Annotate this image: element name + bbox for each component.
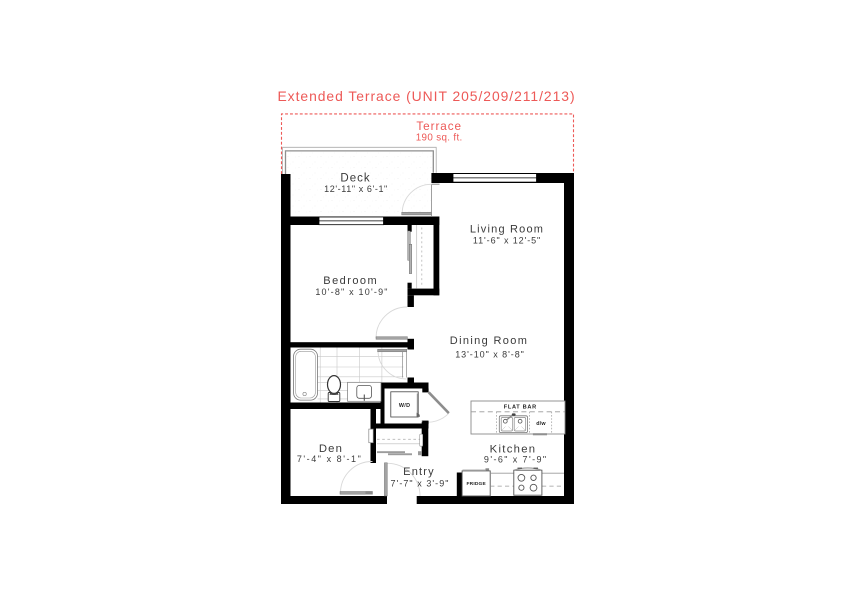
svg-text:Deck: Deck bbox=[340, 172, 370, 184]
svg-text:W/D: W/D bbox=[399, 403, 410, 409]
svg-text:12'-11" x 6'-1": 12'-11" x 6'-1" bbox=[324, 184, 388, 194]
svg-text:190 sq. ft.: 190 sq. ft. bbox=[416, 132, 463, 143]
svg-text:7'-7" x 3'-9": 7'-7" x 3'-9" bbox=[391, 479, 450, 489]
svg-text:FLAT BAR: FLAT BAR bbox=[504, 405, 537, 411]
svg-text:10'-8" x 10'-9": 10'-8" x 10'-9" bbox=[315, 287, 388, 297]
svg-text:Bedroom: Bedroom bbox=[323, 275, 378, 287]
svg-text:13'-10" x 8'-8": 13'-10" x 8'-8" bbox=[455, 349, 525, 359]
svg-text:Terrace: Terrace bbox=[416, 120, 462, 133]
svg-text:d/w: d/w bbox=[536, 421, 546, 427]
svg-text:Dining Room: Dining Room bbox=[450, 335, 528, 347]
svg-text:9'-6" x 7'-9": 9'-6" x 7'-9" bbox=[484, 455, 548, 465]
svg-text:Kitchen: Kitchen bbox=[490, 443, 537, 455]
svg-text:FRIDGE: FRIDGE bbox=[467, 481, 487, 487]
svg-text:Extended Terrace (UNIT 205/209: Extended Terrace (UNIT 205/209/211/213) bbox=[277, 88, 575, 104]
svg-text:11'-6" x 12'-5": 11'-6" x 12'-5" bbox=[473, 236, 541, 246]
svg-text:Living Room: Living Room bbox=[470, 224, 544, 236]
svg-text:7'-4" x 8'-1": 7'-4" x 8'-1" bbox=[297, 454, 363, 464]
svg-text:Entry: Entry bbox=[403, 466, 435, 478]
